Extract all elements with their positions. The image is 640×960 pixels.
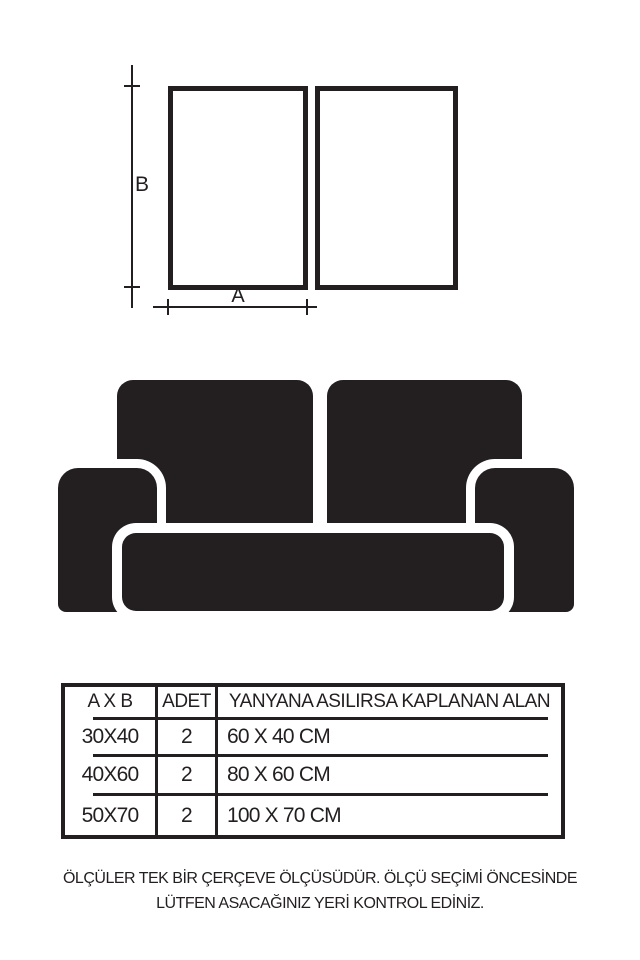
- table-row: 40X60 2 80 X 60 CM: [65, 757, 561, 793]
- table-cell-qty: 2: [155, 796, 215, 835]
- dimension-label-a: A: [228, 286, 248, 306]
- table-cell-qty: 2: [155, 720, 215, 754]
- table-header-area: YANYANA ASILIRSA KAPLANAN ALAN: [215, 687, 561, 717]
- dimension-tick-b-bottom: [124, 286, 140, 288]
- dimension-line-b: [131, 65, 133, 308]
- sofa-silhouette-icon: [58, 378, 574, 612]
- table-row: 50X70 2 100 X 70 CM: [65, 796, 561, 835]
- picture-frame-right: [315, 86, 458, 290]
- table-cell-area: 80 X 60 CM: [215, 757, 561, 793]
- table-cell-size: 30X40: [65, 725, 155, 749]
- table-cell-qty: 2: [155, 757, 215, 793]
- dimension-tick-a-left: [167, 299, 169, 315]
- sofa-seat-cushion: [122, 533, 504, 611]
- table-header-qty: ADET: [155, 687, 215, 717]
- table-header-size: A X B: [65, 691, 155, 713]
- picture-frame-left: [168, 86, 308, 290]
- disclaimer-line-2: LÜTFEN ASACAĞINIZ YERİ KONTROL EDİNİZ.: [0, 891, 640, 916]
- dimension-label-b: B: [135, 172, 149, 198]
- disclaimer-line-1: ÖLÇÜLER TEK BİR ÇERÇEVE ÖLÇÜSÜDÜR. ÖLÇÜ …: [0, 866, 640, 891]
- table-cell-area: 60 X 40 CM: [215, 720, 561, 754]
- size-table: A X B ADET YANYANA ASILIRSA KAPLANAN ALA…: [61, 683, 565, 839]
- table-cell-area: 100 X 70 CM: [215, 796, 561, 835]
- table-row: 30X40 2 60 X 40 CM: [65, 720, 561, 754]
- dimension-tick-b-top: [124, 85, 140, 87]
- table-cell-size: 40X60: [65, 763, 155, 787]
- disclaimer-note: ÖLÇÜLER TEK BİR ÇERÇEVE ÖLÇÜSÜDÜR. ÖLÇÜ …: [0, 866, 640, 916]
- table-header-row: A X B ADET YANYANA ASILIRSA KAPLANAN ALA…: [65, 687, 561, 717]
- table-cell-size: 50X70: [65, 804, 155, 828]
- dimension-tick-a-right: [306, 299, 308, 315]
- product-size-infographic: B A A X B ADET YANYANA ASILIRSA KAPLANAN…: [0, 0, 640, 960]
